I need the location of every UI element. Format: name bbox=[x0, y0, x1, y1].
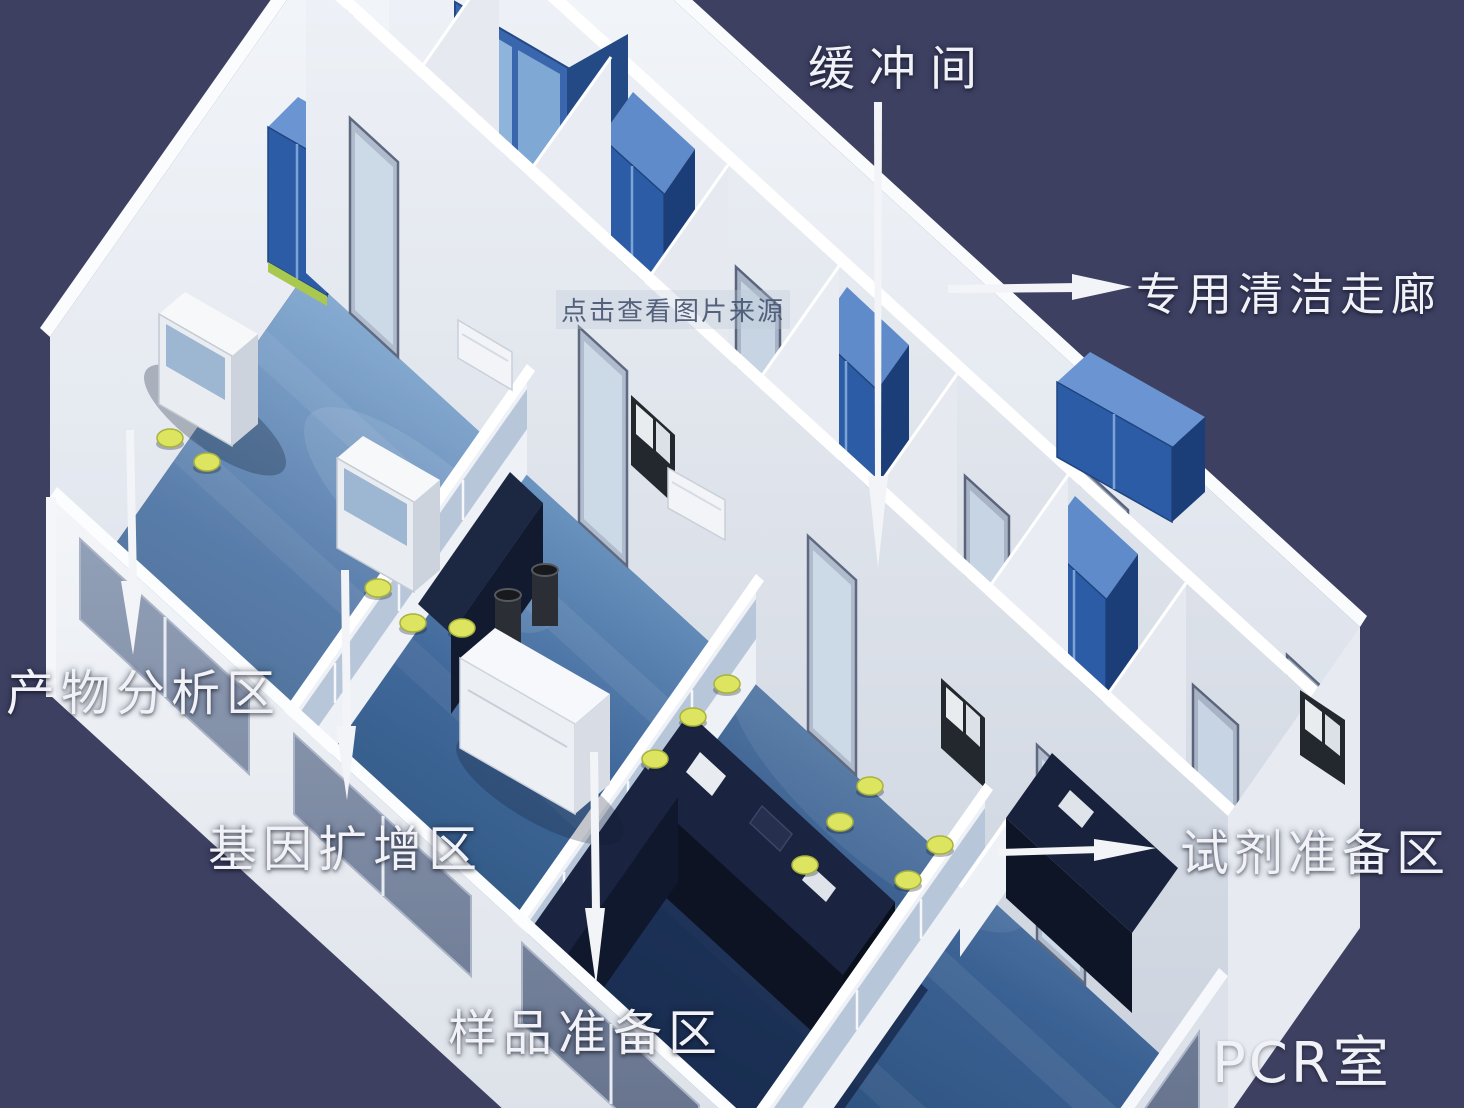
label-product-analysis-area: 产物分析区 bbox=[6, 654, 281, 725]
stool bbox=[364, 579, 392, 600]
stool bbox=[894, 871, 922, 892]
image-source-watermark[interactable]: 点击查看图片来源 bbox=[556, 290, 790, 329]
stool bbox=[826, 813, 854, 834]
stool bbox=[791, 856, 819, 877]
door-glass bbox=[355, 132, 393, 345]
label-sample-preparation-area: 样品准备区 bbox=[448, 994, 723, 1065]
stool bbox=[926, 836, 954, 857]
lab-3d-render bbox=[0, 0, 1464, 1108]
door-glass bbox=[584, 341, 622, 554]
label-gene-amplification-area: 基因扩增区 bbox=[208, 810, 483, 881]
stool bbox=[156, 429, 184, 450]
stool bbox=[856, 777, 884, 798]
stool bbox=[713, 675, 741, 696]
stool bbox=[679, 708, 707, 729]
pcr-lab-3d-diagram: 缓冲间 专用清洁走廊 产物分析区 基因扩增区 样品准备区 试剂准备区 PCR室 … bbox=[0, 0, 1464, 1108]
stool bbox=[641, 750, 669, 771]
label-clean-corridor: 专用清洁走廊 bbox=[1136, 258, 1442, 323]
door-glass bbox=[813, 550, 851, 763]
stool bbox=[448, 619, 476, 640]
stool bbox=[399, 614, 427, 635]
label-reagent-preparation-area: 试剂准备区 bbox=[1180, 814, 1450, 885]
label-buffer-room: 缓冲间 bbox=[808, 30, 991, 99]
label-pcr-room: PCR室 bbox=[1212, 1018, 1392, 1099]
stool bbox=[193, 453, 221, 474]
